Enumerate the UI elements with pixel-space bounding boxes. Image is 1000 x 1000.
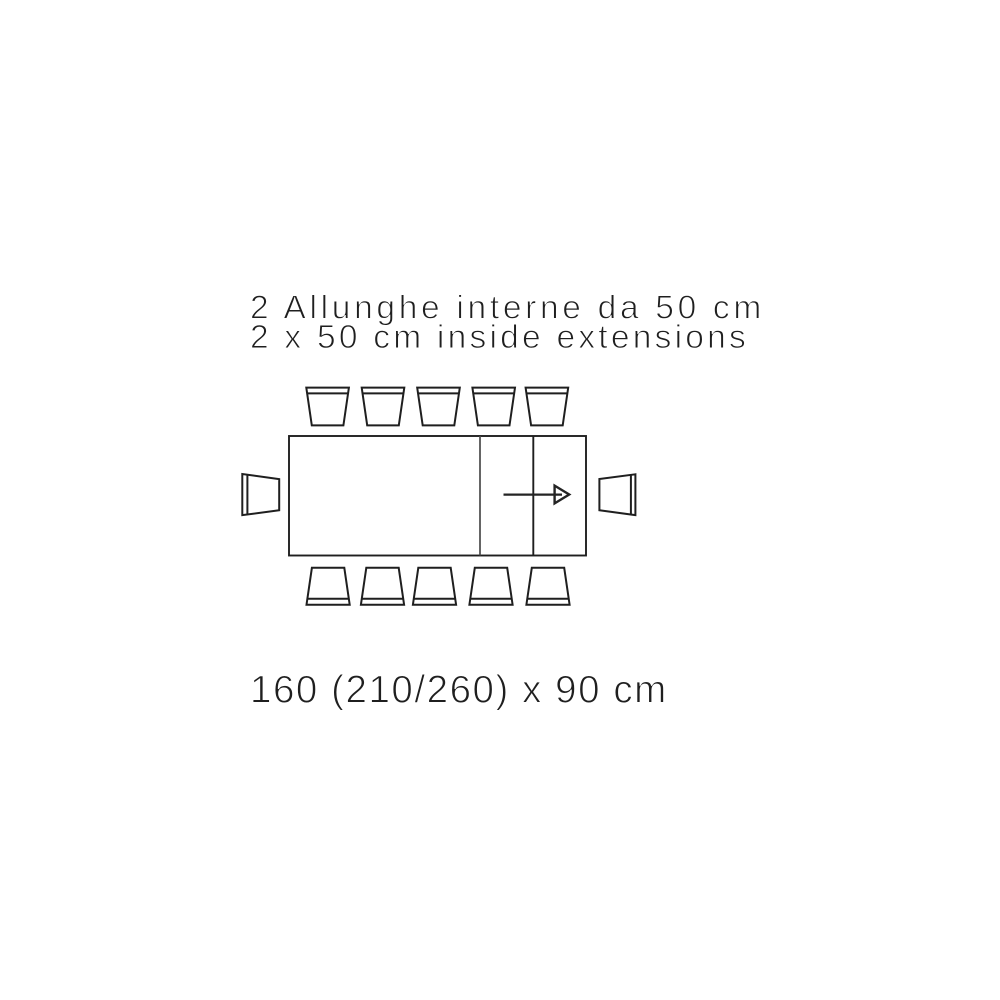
- svg-text:160 (210/260) x 90 cm: 160 (210/260) x 90 cm: [250, 669, 668, 712]
- svg-text:2 x 50 cm inside extensions: 2 x 50 cm inside extensions: [250, 319, 749, 356]
